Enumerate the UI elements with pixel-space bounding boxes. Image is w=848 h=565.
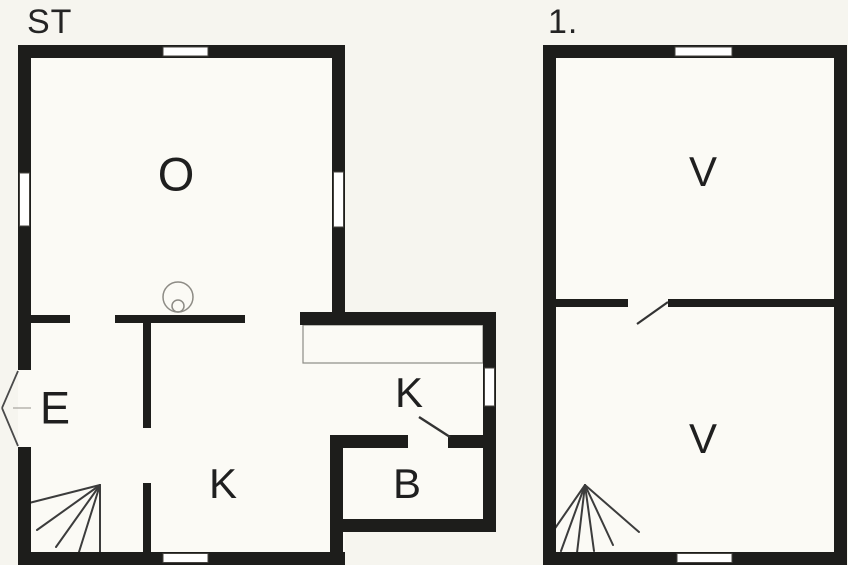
window — [485, 368, 495, 406]
kitchen-counter — [303, 325, 483, 363]
ground-floor-plan — [2, 45, 496, 565]
room-label-entrance: E — [40, 386, 70, 431]
first-floor-plan — [543, 45, 847, 565]
window — [163, 47, 208, 56]
room-label-bedroom-2: V — [689, 418, 717, 460]
window — [677, 554, 732, 563]
window — [334, 172, 344, 227]
window — [20, 173, 30, 226]
room-label-kitchen-annex: K — [395, 372, 423, 414]
floor-plan-page: ST 1. O E K K B V V — [0, 0, 848, 565]
ground-floor-area — [18, 45, 345, 565]
window — [675, 47, 732, 56]
entrance-door-icon — [2, 370, 31, 447]
window — [163, 554, 208, 563]
room-label-living: O — [158, 151, 195, 198]
room-label-bathroom: B — [393, 463, 421, 505]
room-label-kitchen: K — [209, 463, 237, 505]
floor-plan-drawing — [0, 0, 848, 565]
room-label-bedroom-1: V — [689, 151, 717, 193]
first-floor-title: 1. — [548, 5, 578, 39]
ground-floor-title: ST — [27, 5, 72, 39]
